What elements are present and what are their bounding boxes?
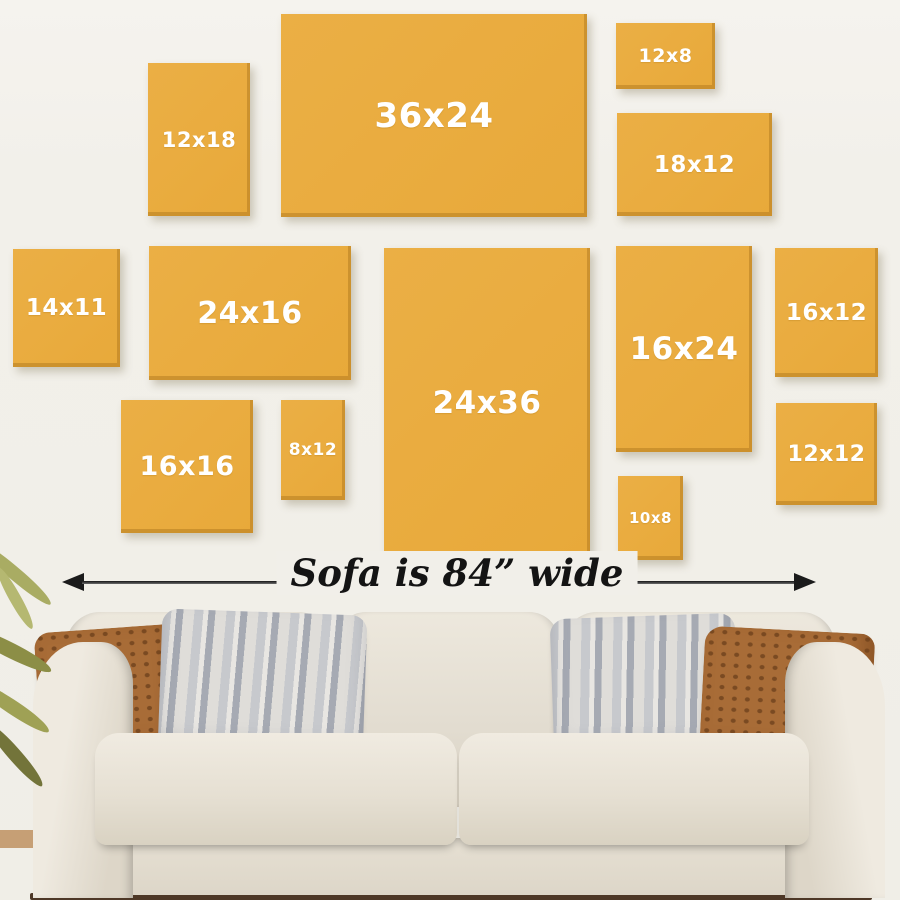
frame-size-label: 12x18 — [162, 128, 237, 152]
frame-size-label: 8x12 — [289, 440, 337, 460]
art-frame-24x36: 24x36 — [384, 248, 590, 557]
frame-size-label: 12x12 — [788, 442, 866, 467]
art-frame-12x8: 12x8 — [616, 23, 715, 89]
art-frame-12x18: 12x18 — [148, 63, 250, 216]
sofa-width-caption: Sofa is 84” wide — [277, 551, 638, 595]
frame-size-label: 24x16 — [197, 296, 302, 331]
frame-size-label: 14x11 — [26, 295, 107, 321]
frame-size-label: 24x36 — [433, 385, 542, 421]
frame-size-label: 16x16 — [139, 451, 234, 482]
sofa-seat-cushion-right — [459, 733, 809, 845]
art-frame-10x8: 10x8 — [618, 476, 683, 560]
sofa-base — [55, 838, 847, 895]
art-frame-16x16: 16x16 — [121, 400, 253, 533]
wall-art-size-guide: 12x18 36x24 12x8 18x12 14x11 24x16 24x36… — [0, 0, 900, 900]
frame-size-label: 12x8 — [639, 45, 693, 67]
art-frame-16x12: 16x12 — [775, 248, 878, 377]
art-frame-16x24: 16x24 — [616, 246, 752, 452]
art-frame-36x24: 36x24 — [281, 14, 587, 217]
art-frame-12x12: 12x12 — [776, 403, 877, 505]
art-frame-24x16: 24x16 — [149, 246, 351, 380]
frame-size-label: 16x24 — [630, 331, 739, 367]
frame-size-label: 18x12 — [654, 152, 735, 178]
art-frame-14x11: 14x11 — [13, 249, 120, 367]
arrow-left-icon — [62, 573, 84, 591]
art-frame-8x12: 8x12 — [281, 400, 345, 500]
frame-size-label: 10x8 — [629, 509, 672, 527]
sofa-seat-cushion-left — [95, 733, 457, 845]
arrow-right-icon — [794, 573, 816, 591]
frame-size-label: 36x24 — [374, 96, 493, 136]
art-frame-18x12: 18x12 — [617, 113, 772, 216]
frame-size-label: 16x12 — [786, 300, 867, 326]
